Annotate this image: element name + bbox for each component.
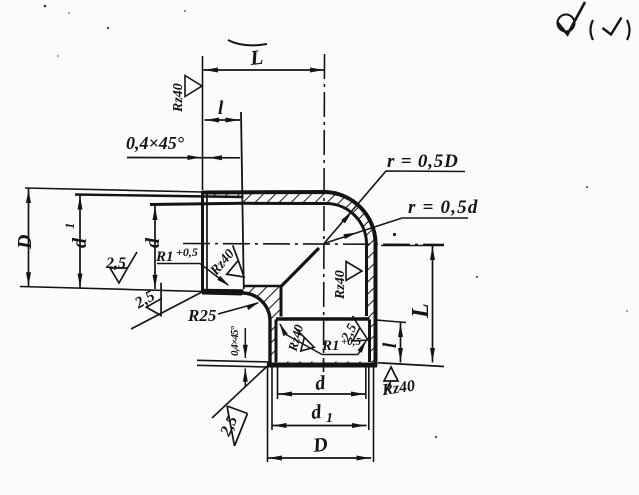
- svg-text:Rz40: Rz40: [171, 83, 186, 113]
- svg-text:2,5: 2,5: [131, 288, 158, 313]
- svg-text:d: d: [142, 237, 164, 248]
- svg-text:1: 1: [62, 223, 77, 230]
- svg-text:2,5: 2,5: [217, 413, 241, 439]
- svg-text:d: d: [310, 401, 324, 424]
- svg-text:Rz40: Rz40: [285, 322, 307, 353]
- svg-text:d: d: [69, 237, 91, 248]
- svg-text:1: 1: [326, 411, 333, 426]
- svg-text:R1: R1: [155, 249, 174, 265]
- svg-text:Rz40: Rz40: [333, 270, 348, 300]
- svg-text:2,5: 2,5: [105, 255, 126, 272]
- svg-text:0,4×45°: 0,4×45°: [126, 133, 185, 153]
- svg-text:l: l: [380, 342, 401, 348]
- svg-text:L: L: [408, 303, 434, 319]
- svg-text:0,4×45°: 0,4×45°: [229, 325, 241, 356]
- svg-text:Rz40: Rz40: [380, 378, 416, 400]
- svg-text:d: d: [314, 372, 328, 395]
- svg-text:r = 0,5D: r = 0,5D: [387, 151, 459, 172]
- svg-text:D: D: [14, 235, 36, 250]
- svg-text:l: l: [218, 98, 224, 119]
- svg-text:R1: R1: [321, 338, 340, 354]
- svg-text:+0,5: +0,5: [176, 245, 198, 259]
- svg-text:R25: R25: [187, 306, 217, 325]
- svg-text:D: D: [311, 433, 329, 457]
- svg-text:L: L: [248, 45, 264, 70]
- svg-text:r = 0,5d: r = 0,5d: [408, 197, 479, 218]
- svg-text:Rz40: Rz40: [207, 247, 238, 279]
